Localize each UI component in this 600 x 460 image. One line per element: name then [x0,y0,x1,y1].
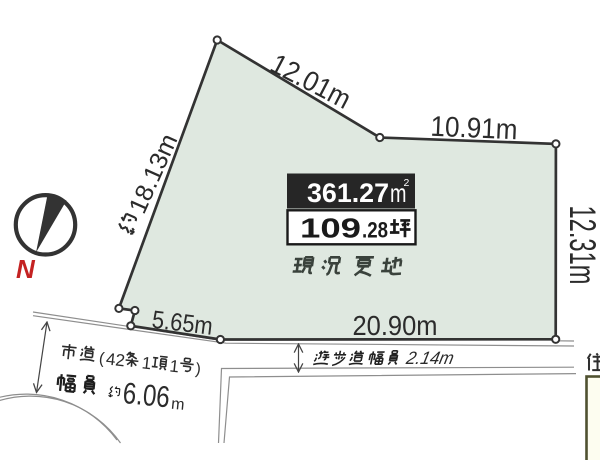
svg-text:N: N [16,254,36,284]
svg-text:42: 42 [105,349,126,370]
svg-text:109: 109 [300,213,361,244]
svg-text:361.27: 361.27 [307,178,389,208]
svg-text:2: 2 [404,177,410,189]
svg-text:10.91m: 10.91m [430,111,518,147]
svg-text:6.06: 6.06 [121,377,171,414]
svg-text:.28: .28 [362,218,388,243]
svg-text:20.90m: 20.90m [353,310,438,341]
svg-text:m: m [170,396,185,414]
svg-text:2.14m: 2.14m [404,348,456,368]
svg-text:12.31m: 12.31m [562,206,600,285]
